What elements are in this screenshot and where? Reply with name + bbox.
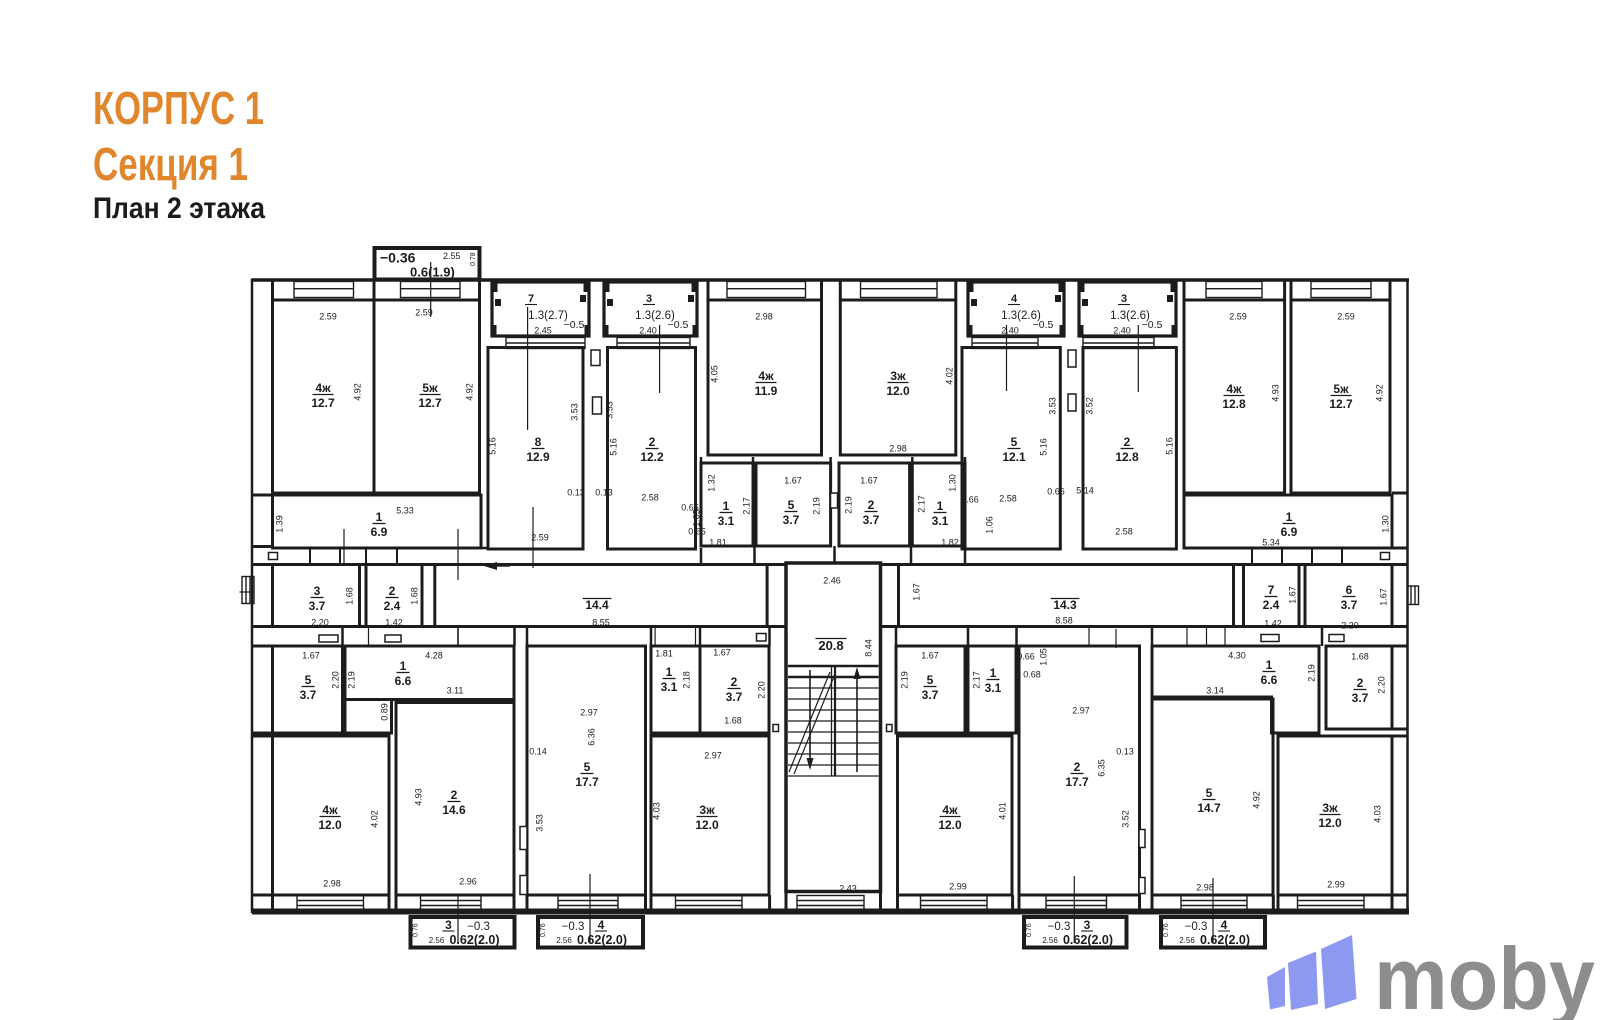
svg-text:12.2: 12.2 [640,450,664,464]
svg-text:0.78: 0.78 [470,252,477,266]
svg-text:−0.3: −0.3 [562,921,585,933]
svg-text:Секция 1: Секция 1 [93,138,248,190]
svg-text:2.98: 2.98 [323,879,341,889]
svg-text:2.40: 2.40 [1113,326,1131,336]
svg-text:1.42: 1.42 [1264,619,1282,629]
svg-text:3.1: 3.1 [932,514,949,528]
svg-text:3.52: 3.52 [1120,810,1130,828]
svg-text:0.13: 0.13 [567,488,585,498]
svg-text:3.7: 3.7 [863,513,880,527]
svg-text:0.62(2.0): 0.62(2.0) [577,933,627,947]
svg-text:2: 2 [1074,760,1081,774]
svg-text:2.20: 2.20 [330,671,340,689]
svg-text:5.16: 5.16 [1164,437,1174,455]
svg-text:3.7: 3.7 [726,690,743,704]
svg-text:1.82: 1.82 [941,538,959,548]
svg-text:2.45: 2.45 [534,326,552,336]
svg-text:2.19: 2.19 [899,671,909,689]
svg-text:8.58: 8.58 [1055,616,1073,626]
svg-text:4: 4 [598,918,605,932]
svg-text:3ж: 3ж [1322,801,1338,815]
svg-text:12.8: 12.8 [1115,450,1139,464]
svg-text:3.53: 3.53 [604,401,614,419]
svg-text:3.7: 3.7 [1352,691,1369,705]
svg-text:6.9: 6.9 [1281,525,1298,539]
svg-text:0.13: 0.13 [1116,747,1134,757]
svg-text:3.7: 3.7 [922,688,939,702]
svg-text:2.17: 2.17 [741,497,751,515]
svg-text:4.93: 4.93 [1270,384,1280,402]
svg-text:1.67: 1.67 [921,651,939,661]
svg-text:1.32: 1.32 [706,474,716,492]
svg-text:2.43: 2.43 [839,884,857,894]
svg-text:6: 6 [1346,583,1353,597]
svg-text:1.67: 1.67 [784,476,802,486]
svg-text:1.81: 1.81 [709,538,727,548]
svg-text:План 2 этажа: План 2 этажа [93,192,265,225]
svg-text:2.17: 2.17 [916,495,926,513]
svg-text:2: 2 [451,788,458,802]
svg-text:5: 5 [1206,786,1213,800]
svg-text:1.67: 1.67 [860,476,878,486]
svg-text:3.7: 3.7 [1341,598,1358,612]
svg-text:−0.3: −0.3 [467,921,490,933]
svg-text:2.98: 2.98 [889,444,907,454]
svg-text:0.76: 0.76 [540,923,547,937]
svg-text:4.93: 4.93 [413,788,423,806]
svg-text:0.89: 0.89 [379,703,389,721]
svg-text:2.19: 2.19 [346,671,356,689]
svg-text:0.62(2.0): 0.62(2.0) [1200,933,1250,947]
svg-text:6.6: 6.6 [395,674,412,688]
svg-text:2.56: 2.56 [556,936,572,945]
svg-text:3.11: 3.11 [447,686,464,696]
svg-text:3.52: 3.52 [1084,397,1094,415]
svg-text:1: 1 [990,666,997,680]
svg-text:12.1: 12.1 [1002,450,1026,464]
svg-text:1.67: 1.67 [1378,588,1388,606]
svg-text:2.99: 2.99 [949,882,967,892]
svg-text:3: 3 [646,293,652,305]
svg-text:5: 5 [788,498,795,512]
svg-text:2.59: 2.59 [415,308,433,318]
svg-text:4.02: 4.02 [369,810,379,828]
svg-text:5.33: 5.33 [396,506,414,516]
svg-text:2.40: 2.40 [1001,326,1019,336]
svg-text:1.81: 1.81 [655,649,673,659]
svg-text:3.53: 3.53 [569,403,579,421]
svg-text:2.55: 2.55 [443,251,461,261]
svg-text:1.30: 1.30 [1380,515,1390,533]
svg-text:12.0: 12.0 [695,818,719,832]
svg-text:1: 1 [400,659,407,673]
svg-text:2.59: 2.59 [1337,312,1355,322]
svg-text:4.30: 4.30 [1228,651,1246,661]
svg-text:1: 1 [666,665,673,679]
svg-text:5.16: 5.16 [1038,438,1048,456]
svg-text:5.14: 5.14 [1076,486,1094,496]
svg-text:2: 2 [1124,435,1131,449]
svg-text:1: 1 [723,499,730,513]
svg-text:6.9: 6.9 [371,525,388,539]
svg-text:2.98: 2.98 [1196,883,1214,893]
svg-text:2.20: 2.20 [311,618,329,628]
svg-text:2.58: 2.58 [641,493,659,503]
svg-text:5: 5 [1011,435,1018,449]
svg-text:3.14: 3.14 [1206,686,1224,696]
svg-text:−0.5: −0.5 [1033,319,1054,331]
svg-text:4.28: 4.28 [425,651,443,661]
svg-text:1.67: 1.67 [713,648,731,658]
svg-text:8: 8 [535,435,542,449]
svg-text:2.58: 2.58 [1115,527,1133,537]
svg-text:−0.5: −0.5 [1142,319,1163,331]
svg-text:1.68: 1.68 [409,587,419,605]
svg-text:2.97: 2.97 [580,708,598,718]
svg-text:1.42: 1.42 [385,618,403,628]
svg-text:4.03: 4.03 [651,802,661,820]
svg-text:4.05: 4.05 [709,365,719,383]
svg-text:8.55: 8.55 [592,618,610,628]
svg-text:2.19: 2.19 [1306,664,1316,682]
svg-text:8.44: 8.44 [863,639,873,657]
svg-text:1.39: 1.39 [274,515,284,533]
svg-text:0.66: 0.66 [1047,487,1065,497]
svg-text:0.62(2.0): 0.62(2.0) [449,933,499,947]
svg-text:14.4: 14.4 [585,598,609,612]
svg-text:2.40: 2.40 [639,326,657,336]
svg-text:4ж: 4ж [758,369,774,383]
svg-text:2.96: 2.96 [459,877,477,887]
svg-text:3.1: 3.1 [985,681,1002,695]
svg-text:14.3: 14.3 [1053,598,1077,612]
svg-text:12.7: 12.7 [311,396,335,410]
svg-text:4.92: 4.92 [464,383,474,401]
svg-text:2.19: 2.19 [811,497,821,515]
svg-text:4.92: 4.92 [352,383,362,401]
svg-text:4: 4 [1011,293,1018,305]
svg-text:0.66: 0.66 [961,495,979,505]
svg-text:6.6: 6.6 [1261,673,1278,687]
svg-text:12.7: 12.7 [1329,397,1353,411]
svg-text:−0.5: −0.5 [668,319,689,331]
svg-text:4.92: 4.92 [1374,384,1384,402]
svg-text:2.59: 2.59 [319,312,337,322]
svg-text:−0.5: −0.5 [564,319,585,331]
svg-text:17.7: 17.7 [575,775,599,789]
svg-text:7: 7 [528,293,534,305]
svg-text:0.6(1.9): 0.6(1.9) [410,265,455,280]
svg-text:3: 3 [1121,293,1127,305]
svg-text:2: 2 [1357,676,1364,690]
svg-text:2.18: 2.18 [681,671,691,689]
svg-text:17.7: 17.7 [1065,775,1089,789]
svg-text:3: 3 [314,584,321,598]
svg-text:2.46: 2.46 [823,576,841,586]
svg-text:6.36: 6.36 [586,728,596,746]
svg-text:5ж: 5ж [422,381,438,395]
svg-text:12.0: 12.0 [938,818,962,832]
svg-text:2.59: 2.59 [531,533,549,543]
svg-text:2.56: 2.56 [1042,936,1058,945]
svg-text:1.68: 1.68 [344,587,354,605]
svg-text:−0.3: −0.3 [1048,921,1071,933]
svg-text:5: 5 [305,673,312,687]
svg-text:0.62(2.0): 0.62(2.0) [1063,933,1113,947]
svg-text:2: 2 [731,675,738,689]
svg-text:12.0: 12.0 [1318,816,1342,830]
svg-text:4.92: 4.92 [1251,791,1261,809]
svg-text:1.67: 1.67 [1287,586,1297,604]
svg-text:1.67: 1.67 [302,651,320,661]
svg-text:moby: moby [1374,929,1595,1020]
svg-text:−0.36: −0.36 [380,250,416,266]
svg-text:−0.3: −0.3 [1185,921,1208,933]
svg-text:4ж: 4ж [942,803,958,817]
svg-text:3.7: 3.7 [309,599,326,613]
svg-text:5.16: 5.16 [487,437,497,455]
svg-text:0.14: 0.14 [529,747,547,757]
svg-text:4ж: 4ж [315,381,331,395]
svg-text:2.58: 2.58 [999,494,1017,504]
svg-text:1: 1 [1266,658,1273,672]
svg-text:4: 4 [1221,918,1228,932]
svg-text:5ж: 5ж [1333,382,1349,396]
svg-text:0.66: 0.66 [1017,652,1035,662]
svg-text:2.56: 2.56 [1179,936,1195,945]
svg-text:14.6: 14.6 [442,803,466,817]
svg-text:3.1: 3.1 [718,514,735,528]
svg-text:1.06: 1.06 [984,516,994,534]
svg-text:0.13: 0.13 [595,488,613,498]
svg-text:1.68: 1.68 [1351,652,1369,662]
svg-text:2.4: 2.4 [1263,598,1280,612]
svg-text:1: 1 [376,510,383,524]
svg-text:1.05: 1.05 [1038,648,1048,666]
svg-text:2.99: 2.99 [1327,880,1345,890]
svg-text:3.7: 3.7 [300,688,317,702]
svg-text:2.56: 2.56 [429,936,445,945]
svg-text:2.20: 2.20 [756,681,766,699]
svg-text:1.3(2.7): 1.3(2.7) [528,310,568,322]
svg-text:1.67: 1.67 [911,583,921,601]
svg-text:12.8: 12.8 [1222,397,1246,411]
svg-text:11.9: 11.9 [755,384,778,398]
svg-text:4ж: 4ж [1226,382,1242,396]
svg-text:5.16: 5.16 [608,438,618,456]
svg-text:КОРПУС 1: КОРПУС 1 [93,82,264,134]
svg-text:3: 3 [445,918,452,932]
svg-text:0.76: 0.76 [1163,923,1170,937]
svg-text:12.7: 12.7 [418,396,442,410]
svg-text:3.7: 3.7 [783,513,800,527]
svg-text:2.59: 2.59 [1229,312,1247,322]
svg-text:3.53: 3.53 [534,814,544,832]
svg-text:7: 7 [1268,583,1275,597]
svg-text:3ж: 3ж [890,369,906,383]
svg-text:4ж: 4ж [322,803,338,817]
svg-text:2.97: 2.97 [1072,706,1090,716]
svg-text:14.7: 14.7 [1197,801,1221,815]
svg-text:12.0: 12.0 [318,818,342,832]
svg-text:12.9: 12.9 [526,450,550,464]
svg-text:0.68: 0.68 [1023,670,1041,680]
svg-text:1.68: 1.68 [724,716,742,726]
svg-text:4.01: 4.01 [997,802,1007,820]
svg-text:20.8: 20.8 [818,638,843,653]
svg-text:3.53: 3.53 [1047,397,1057,415]
svg-text:5.34: 5.34 [1262,538,1280,548]
svg-text:2.17: 2.17 [971,671,981,689]
svg-text:2: 2 [649,435,656,449]
svg-text:0.65: 0.65 [688,527,706,537]
svg-text:1.05: 1.05 [691,509,701,527]
svg-text:2.19: 2.19 [843,496,853,514]
svg-text:2.4: 2.4 [384,599,401,613]
svg-text:2: 2 [389,584,396,598]
svg-text:1: 1 [1286,510,1293,524]
svg-text:2.98: 2.98 [755,312,773,322]
svg-text:0.76: 0.76 [413,923,420,937]
svg-text:4.02: 4.02 [944,367,954,385]
svg-text:1.30: 1.30 [947,474,957,492]
svg-text:1: 1 [937,499,944,513]
svg-text:2.20: 2.20 [1376,676,1386,694]
svg-text:2.20: 2.20 [1341,621,1359,631]
svg-text:6.35: 6.35 [1096,759,1106,777]
svg-text:5: 5 [584,760,591,774]
svg-text:3: 3 [1084,918,1091,932]
svg-text:2.97: 2.97 [704,751,722,761]
svg-text:12.0: 12.0 [886,384,910,398]
svg-text:3ж: 3ж [699,803,715,817]
svg-text:5: 5 [927,673,934,687]
svg-text:2: 2 [868,498,875,512]
svg-text:3.1: 3.1 [661,680,678,694]
svg-text:0.76: 0.76 [1026,923,1033,937]
svg-text:4.03: 4.03 [1372,805,1382,823]
